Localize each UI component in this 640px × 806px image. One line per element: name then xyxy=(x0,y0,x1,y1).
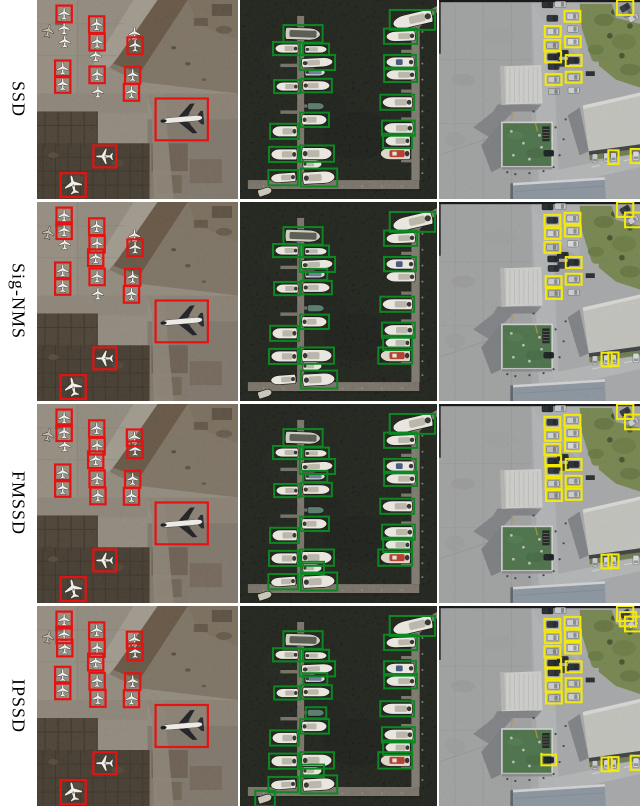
figure-cell-fmssd-ships xyxy=(240,404,437,603)
row-label-fmssd-text: FMSSD xyxy=(8,471,29,535)
figure-cell-sig-nms-ships xyxy=(240,202,437,401)
row-label-fmssd: FMSSD xyxy=(0,404,36,603)
figure-cell-ssd-vehicles xyxy=(439,0,640,199)
figure-cell-ipssd-vehicles xyxy=(439,606,640,806)
figure-cell-sig-nms-vehicles xyxy=(439,202,640,401)
row-label-gutter: SSD Sig-NMS FMSSD IPSSD xyxy=(0,0,37,806)
figure-cell-fmssd-vehicles xyxy=(439,404,640,603)
row-label-ipssd: IPSSD xyxy=(0,606,36,806)
row-label-ssd-text: SSD xyxy=(8,81,29,117)
row-label-ipssd-text: IPSSD xyxy=(8,679,29,733)
detection-comparison-figure: SSD Sig-NMS FMSSD IPSSD xyxy=(0,0,640,806)
row-label-sig-nms: Sig-NMS xyxy=(0,202,36,401)
figure-cell-ipssd-airplanes xyxy=(37,606,238,806)
figure-cell-ssd-ships xyxy=(240,0,437,199)
figure-cell-fmssd-airplanes xyxy=(37,404,238,603)
figure-cell-sig-nms-airplanes xyxy=(37,202,238,401)
row-label-ssd: SSD xyxy=(0,0,36,199)
figure-cell-ssd-airplanes xyxy=(37,0,238,199)
figure-cell-ipssd-ships xyxy=(240,606,437,806)
row-label-sig-nms-text: Sig-NMS xyxy=(8,263,29,339)
